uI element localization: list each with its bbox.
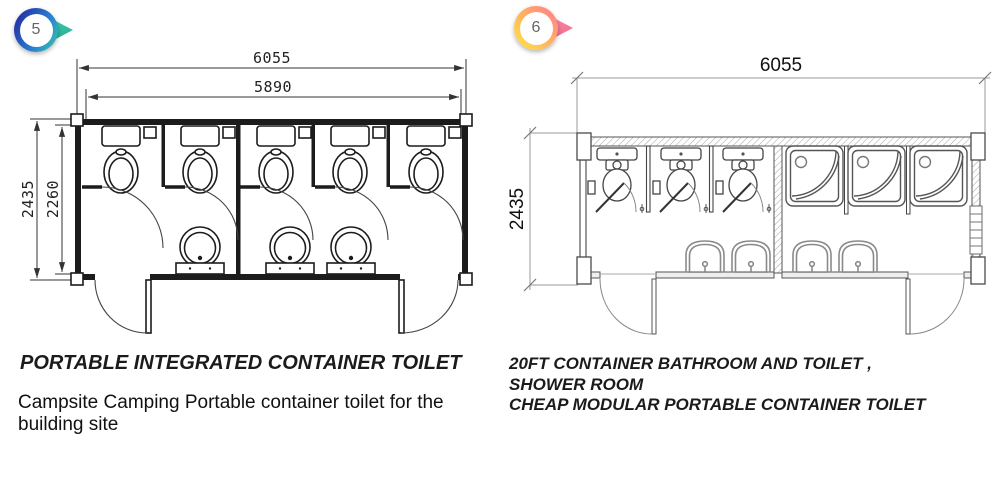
- dim-left-height-inner: 2260: [44, 180, 62, 218]
- product-floorplan-image: 6055 5890 2435 2260: [0, 0, 1000, 500]
- paper-holder-icon: [653, 181, 660, 194]
- left-plan-title: PORTABLE INTEGRATED CONTAINER TOILET: [20, 352, 490, 375]
- shower-icon: [910, 146, 967, 206]
- door-swing: [910, 279, 964, 334]
- showers-right-plan: [786, 146, 967, 214]
- wall-louver: [970, 206, 982, 254]
- toilet-icon: [331, 126, 385, 193]
- dim-left-width-outer: 6055: [253, 49, 291, 67]
- badge-number: 6: [520, 12, 553, 45]
- sinks-left-plan: [176, 227, 375, 274]
- sink-icon: [793, 241, 831, 272]
- floorplan-right: 6055 2435: [507, 55, 991, 334]
- shower-icon: [786, 146, 843, 206]
- floorplans-svg: 6055 5890 2435 2260: [0, 0, 1000, 352]
- dim-right-height: 2435: [507, 188, 528, 230]
- door-leaf: [652, 279, 656, 334]
- corner-post: [577, 133, 591, 160]
- toilets-left-plan: [102, 126, 461, 193]
- corner-casting: [71, 114, 83, 126]
- paper-holder-icon: [716, 181, 723, 194]
- entry-doors-left-plan: [95, 280, 458, 333]
- toilet-icon: [597, 148, 637, 201]
- sink-icon: [686, 241, 724, 272]
- right-plan-title-line3: CHEAP MODULAR PORTABLE CONTAINER TOILET: [509, 395, 1000, 416]
- badge-ring: 5: [14, 8, 58, 52]
- toilet-icon: [723, 148, 763, 201]
- container-walls-right-plan: [577, 133, 985, 284]
- sink-icon: [327, 227, 375, 274]
- sink-icon: [266, 227, 314, 274]
- left-plan-description: Campsite Camping Portable container toil…: [18, 392, 470, 435]
- toilet-icon: [102, 126, 156, 193]
- right-plan-title: 20FT CONTAINER BATHROOM AND TOILET , SHO…: [509, 354, 1000, 416]
- paper-holder-icon: [588, 181, 595, 194]
- dim-right-width: 6055: [760, 55, 802, 76]
- entry-doors-right-plan: [600, 279, 964, 334]
- toilet-icon: [407, 126, 461, 193]
- dim-left-width-inner: 5890: [254, 78, 292, 96]
- toilet-icon: [661, 148, 701, 201]
- slide-badge-6: 6: [514, 6, 594, 56]
- door-leaf: [906, 279, 910, 334]
- corner-post: [577, 257, 591, 284]
- badge-number: 5: [20, 14, 53, 47]
- door-leaf: [146, 280, 151, 333]
- dimensions-left-plan: 6055 5890 2435 2260: [19, 49, 466, 280]
- right-plan-title-line2: SHOWER ROOM: [509, 375, 1000, 396]
- right-plan-title-line1: 20FT CONTAINER BATHROOM AND TOILET ,: [509, 354, 1000, 375]
- corner-casting: [460, 114, 472, 126]
- toilet-icon: [181, 126, 235, 193]
- door-swing: [600, 279, 652, 334]
- door-leaf: [399, 280, 404, 333]
- door-swing: [401, 280, 458, 333]
- corner-post: [971, 133, 985, 160]
- sink-icon: [732, 241, 770, 272]
- dim-left-height-outer: 2435: [19, 180, 37, 218]
- toilet-icon: [257, 126, 311, 193]
- corner-casting: [71, 273, 83, 285]
- shower-icon: [848, 146, 905, 206]
- sink-icon: [176, 227, 224, 274]
- door-swing: [95, 280, 147, 333]
- floorplan-left: 6055 5890 2435 2260: [19, 49, 472, 333]
- badge-ring: 6: [514, 6, 558, 50]
- slide-badge-5: 5: [14, 8, 94, 58]
- corner-casting: [460, 273, 472, 285]
- sink-icon: [839, 241, 877, 272]
- corner-post: [971, 257, 985, 284]
